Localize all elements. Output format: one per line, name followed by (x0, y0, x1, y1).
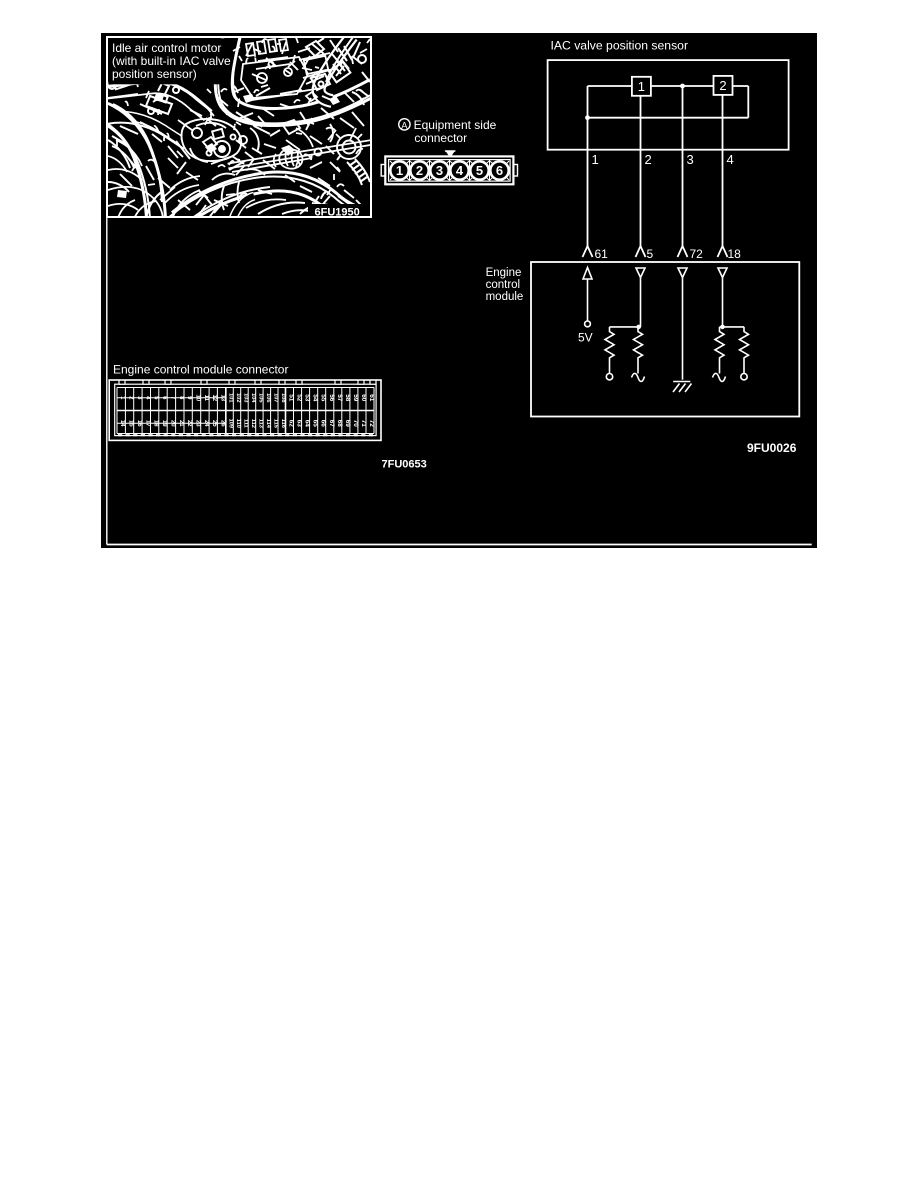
svg-text:56: 56 (328, 394, 335, 402)
svg-text:59: 59 (352, 394, 359, 402)
svg-text:Engine control module connecto: Engine control module connector (113, 363, 288, 377)
svg-text:Idle air control motor: Idle air control motor (112, 41, 221, 55)
svg-text:109: 109 (228, 419, 234, 428)
svg-text:1: 1 (592, 152, 599, 167)
svg-text:Engine: Engine (486, 267, 522, 279)
svg-text:(with built-in IAC valve: (with built-in IAC valve (112, 54, 231, 68)
svg-text:107: 107 (272, 393, 278, 402)
svg-text:104: 104 (250, 393, 256, 403)
svg-text:102: 102 (235, 393, 241, 402)
svg-text:2: 2 (719, 78, 726, 93)
svg-text:103: 103 (243, 393, 249, 402)
svg-text:58: 58 (344, 394, 351, 402)
svg-text:2: 2 (416, 163, 423, 178)
svg-text:71: 71 (360, 420, 367, 428)
svg-text:6: 6 (496, 163, 503, 178)
svg-text:54: 54 (312, 394, 319, 402)
svg-text:63: 63 (296, 420, 303, 428)
svg-text:55: 55 (320, 394, 327, 402)
svg-text:18: 18 (728, 247, 742, 261)
svg-text:52: 52 (296, 394, 303, 402)
svg-text:111: 111 (243, 419, 249, 428)
svg-text:3: 3 (436, 163, 443, 178)
svg-text:116: 116 (280, 419, 286, 428)
svg-text:57: 57 (336, 394, 343, 402)
svg-text:65: 65 (312, 420, 319, 428)
svg-text:1: 1 (396, 163, 403, 178)
svg-text:control: control (486, 279, 521, 291)
svg-text:2: 2 (645, 152, 652, 167)
svg-text:106: 106 (265, 393, 271, 402)
svg-text:112: 112 (250, 419, 256, 428)
svg-text:12: 12 (211, 394, 217, 401)
svg-text:66: 66 (320, 420, 327, 428)
svg-text:13: 13 (220, 394, 226, 401)
svg-text:11: 11 (203, 395, 209, 402)
svg-text:17: 17 (144, 420, 150, 427)
svg-text:position sensor): position sensor) (112, 67, 197, 81)
svg-text:110: 110 (235, 419, 241, 428)
svg-text:14: 14 (119, 420, 125, 427)
svg-text:61: 61 (368, 394, 375, 402)
svg-text:51: 51 (288, 394, 295, 402)
svg-text:69: 69 (344, 420, 351, 428)
svg-text:101: 101 (228, 393, 234, 402)
svg-text:25: 25 (211, 420, 217, 427)
svg-text:18: 18 (153, 420, 159, 427)
svg-text:connector: connector (414, 131, 467, 145)
svg-text:115: 115 (272, 419, 278, 428)
svg-text:module: module (486, 291, 524, 303)
svg-text:16: 16 (136, 420, 142, 427)
svg-text:26: 26 (220, 420, 226, 427)
svg-text:20: 20 (169, 420, 175, 427)
svg-text:60: 60 (360, 394, 367, 402)
svg-text:3: 3 (687, 152, 694, 167)
svg-text:108: 108 (280, 393, 286, 402)
svg-text:9FU0026: 9FU0026 (747, 441, 797, 455)
svg-text:19: 19 (161, 420, 167, 427)
svg-text:7FU0653: 7FU0653 (382, 459, 427, 471)
svg-text:72: 72 (690, 247, 704, 261)
svg-text:5: 5 (476, 163, 483, 178)
svg-text:10: 10 (195, 394, 201, 401)
svg-text:1: 1 (638, 79, 645, 94)
svg-text:114: 114 (265, 419, 271, 429)
svg-text:5V: 5V (578, 331, 593, 345)
svg-text:23: 23 (195, 420, 201, 427)
svg-text:4: 4 (456, 163, 464, 178)
svg-text:22: 22 (186, 420, 192, 427)
svg-text:68: 68 (336, 420, 343, 428)
svg-text:105: 105 (257, 393, 263, 402)
svg-text:24: 24 (203, 420, 209, 427)
svg-text:67: 67 (328, 420, 335, 428)
svg-text:15: 15 (128, 420, 134, 427)
svg-text:Equipment side: Equipment side (414, 118, 497, 132)
svg-text:IAC valve position sensor: IAC valve position sensor (551, 39, 689, 53)
svg-text:72: 72 (368, 420, 375, 428)
svg-text:113: 113 (257, 419, 263, 428)
svg-text:6FU1950: 6FU1950 (315, 207, 360, 219)
svg-text:70: 70 (352, 420, 359, 428)
svg-text:62: 62 (288, 420, 295, 428)
svg-text:5: 5 (647, 247, 654, 261)
svg-text:64: 64 (304, 420, 311, 428)
svg-text:61: 61 (595, 247, 609, 261)
svg-text:21: 21 (178, 420, 184, 427)
svg-text:A: A (401, 121, 407, 131)
svg-text:53: 53 (304, 394, 311, 402)
svg-text:4: 4 (727, 152, 734, 167)
